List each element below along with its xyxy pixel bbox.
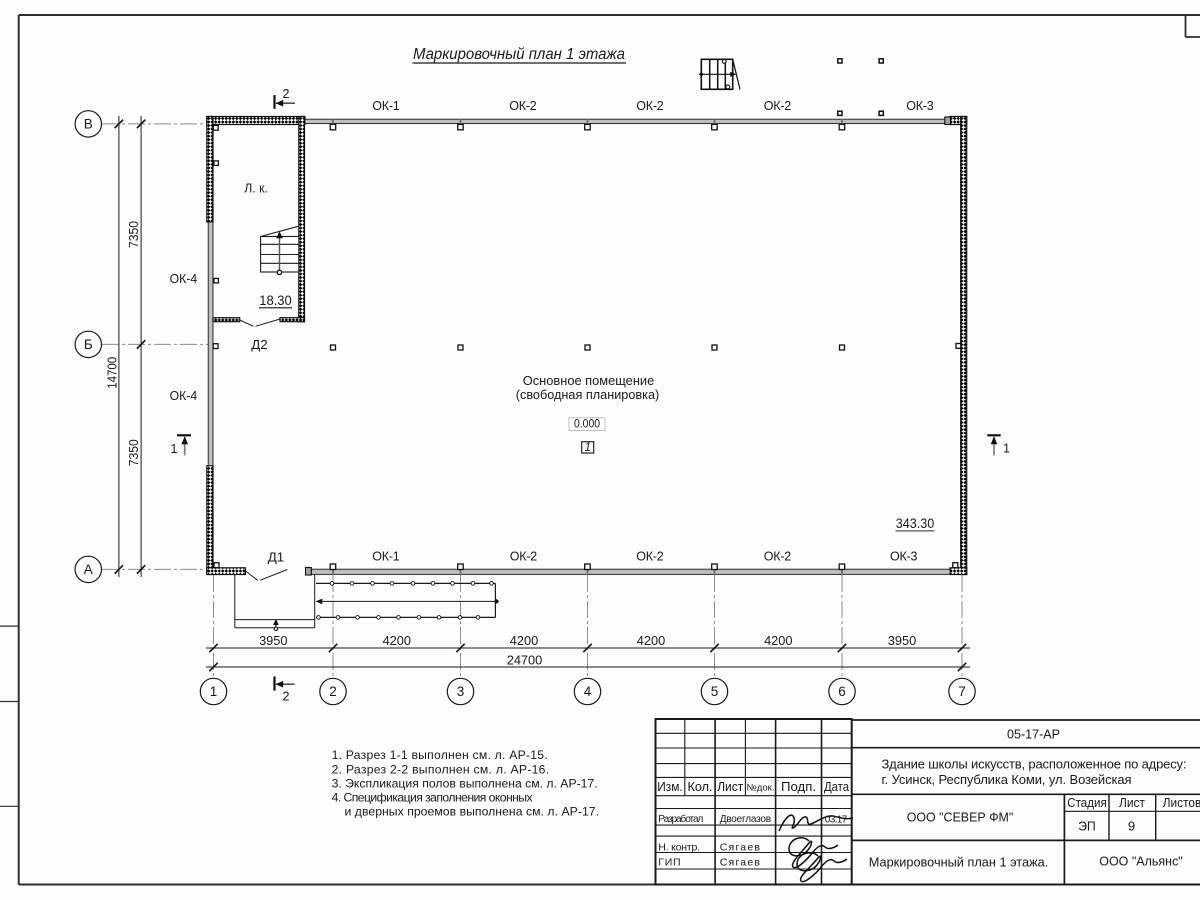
svg-text:4200: 4200 (510, 633, 538, 648)
svg-text:ООО "СЕВЕР ФМ": ООО "СЕВЕР ФМ" (907, 810, 1014, 825)
svg-text:ОК-3: ОК-3 (906, 99, 934, 113)
svg-text:Сягаев: Сягаев (720, 841, 761, 853)
svg-text:1: 1 (584, 442, 590, 454)
svg-text:Д1: Д1 (268, 550, 285, 565)
svg-text:Здание школы искусств, располо: Здание школы искусств, расположенное по … (882, 756, 1187, 771)
svg-text:3950: 3950 (259, 633, 287, 648)
svg-text:6: 6 (838, 684, 846, 699)
svg-text:7: 7 (958, 684, 966, 699)
svg-text:1. Разрез 1-1 выполнен см. л.: 1. Разрез 1-1 выполнен см. л. АР-15. (332, 748, 548, 762)
svg-text:ЭП: ЭП (1078, 819, 1096, 834)
svg-text:(свободная планировка): (свободная планировка) (516, 387, 660, 402)
svg-text:Листов: Листов (1163, 796, 1200, 810)
svg-text:1: 1 (1003, 442, 1010, 456)
svg-text:9: 9 (1128, 819, 1135, 834)
svg-text:ООО "Альянс": ООО "Альянс" (1099, 853, 1183, 868)
svg-text:1: 1 (171, 442, 178, 456)
svg-text:Дата: Дата (824, 780, 849, 794)
svg-text:ОК-2: ОК-2 (510, 550, 538, 564)
svg-text:г. Усинск, Республика Коми, ул: г. Усинск, Республика Коми, ул. Возейска… (882, 772, 1132, 787)
svg-text:4200: 4200 (383, 633, 411, 648)
svg-text:ОК-1: ОК-1 (372, 99, 400, 113)
svg-text:В: В (84, 117, 93, 132)
svg-text:№док.: №док. (747, 782, 775, 793)
svg-text:ОК-4: ОК-4 (170, 272, 198, 286)
svg-text:3950: 3950 (888, 633, 916, 648)
svg-text:Д2: Д2 (251, 337, 268, 352)
svg-text:Стадия: Стадия (1067, 796, 1107, 810)
svg-text:ГИП: ГИП (658, 857, 680, 869)
svg-text:2: 2 (283, 689, 290, 703)
svg-text:А: А (84, 562, 93, 577)
svg-text:2. Разрез 2-2 выполнен см. л.: 2. Разрез 2-2 выполнен см. л. АР-16. (332, 763, 549, 777)
svg-text:ОК-2: ОК-2 (509, 99, 537, 113)
svg-text:2: 2 (329, 684, 337, 699)
svg-text:Сягаев: Сягаев (720, 857, 761, 869)
svg-text:5: 5 (711, 684, 719, 699)
svg-text:4: 4 (584, 684, 592, 699)
svg-text:2: 2 (283, 87, 290, 101)
svg-text:Кол.: Кол. (688, 780, 713, 794)
svg-text:Маркировочный план 1 этажа: Маркировочный план 1 этажа (413, 46, 625, 63)
svg-text:0.000: 0.000 (574, 417, 600, 431)
svg-text:ОК-1: ОК-1 (372, 550, 400, 564)
svg-text:Подп.: Подп. (781, 780, 816, 794)
svg-text:Изм.: Изм. (657, 780, 683, 794)
svg-text:24700: 24700 (507, 653, 543, 668)
svg-text:05-17-АР: 05-17-АР (1007, 726, 1060, 741)
svg-text:ОК-2: ОК-2 (764, 550, 792, 564)
svg-text:343.30: 343.30 (896, 516, 935, 531)
svg-text:ОК-2: ОК-2 (636, 99, 664, 113)
svg-text:Основное помещение: Основное помещение (523, 373, 655, 388)
svg-text:3. Экспликация полов выполнена: 3. Экспликация полов выполнена см. л. АР… (332, 777, 598, 791)
svg-text:14700: 14700 (105, 357, 120, 389)
svg-text:Лист: Лист (717, 780, 743, 794)
svg-text:Маркировочный план 1 этажа.: Маркировочный план 1 этажа. (869, 854, 1049, 869)
svg-text:4. Спецификация заполнения око: 4. Спецификация заполнения оконных (332, 791, 533, 805)
svg-text:3: 3 (457, 684, 465, 699)
svg-text:Двоеглазов: Двоеглазов (720, 814, 771, 825)
svg-text:Б: Б (84, 337, 93, 352)
svg-text:18.30: 18.30 (259, 293, 292, 308)
svg-text:Н. контр.: Н. контр. (658, 841, 700, 853)
svg-text:7350: 7350 (126, 439, 141, 466)
svg-text:Разработал: Разработал (658, 813, 703, 825)
svg-text:7350: 7350 (126, 221, 141, 248)
svg-text:ОК-2: ОК-2 (764, 99, 792, 113)
svg-text:ОК-2: ОК-2 (636, 550, 664, 564)
svg-text:4200: 4200 (637, 633, 665, 648)
svg-text:1: 1 (210, 684, 218, 699)
svg-text:4200: 4200 (764, 633, 792, 648)
svg-text:ОК-4: ОК-4 (170, 389, 198, 403)
svg-text:ОК-3: ОК-3 (890, 550, 918, 564)
svg-text:Лист: Лист (1119, 796, 1145, 810)
svg-text:Л. к.: Л. к. (244, 181, 267, 196)
svg-text:и дверных проемов выполнена см: и дверных проемов выполнена см. л. АР-17… (345, 804, 600, 818)
